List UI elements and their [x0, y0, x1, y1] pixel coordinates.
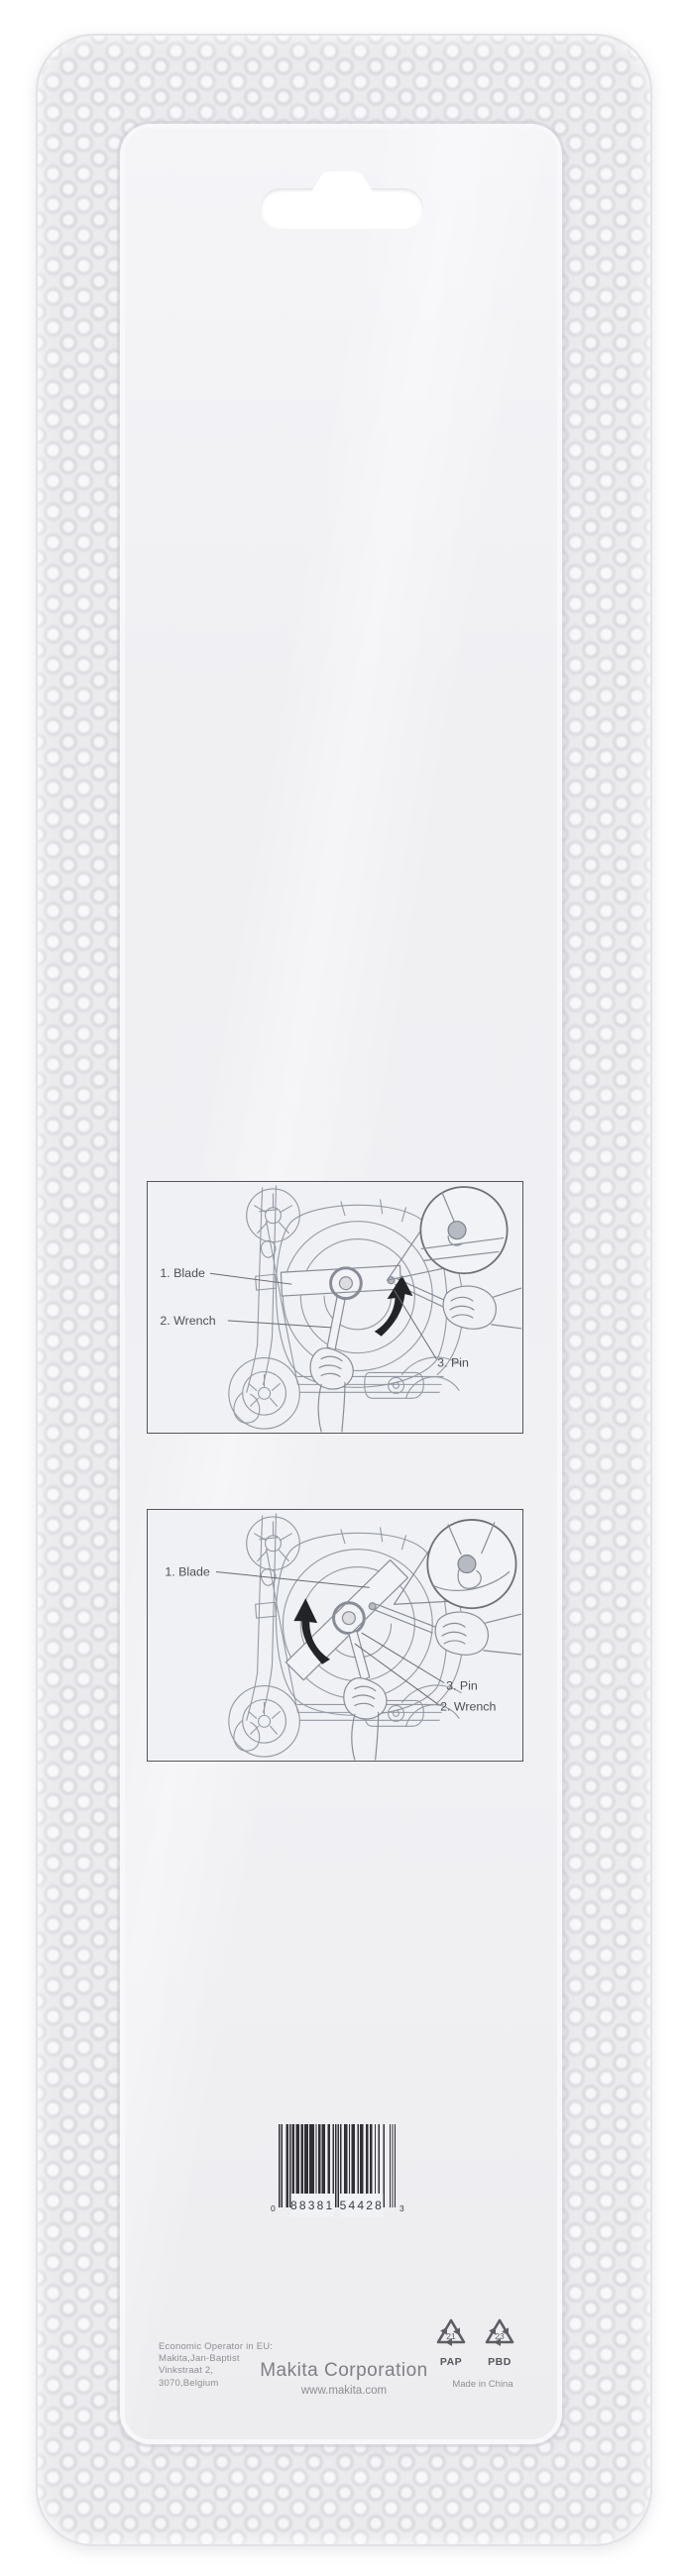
mower-blade-loosen-illustration: 1. Blade 3. Pin 2. Wrench [148, 1510, 522, 1761]
barcode-check-digit: 3 [399, 2203, 404, 2213]
recycling-symbol-pap: 21 PAP [431, 2314, 471, 2368]
recycling-symbols: 21 PAP 23 PBD [431, 2314, 519, 2368]
manufacturer-website: www.makita.com [225, 2385, 463, 2397]
recycling-code: 21 [446, 2331, 456, 2341]
recycling-symbol-pbd: 23 PBD [480, 2314, 519, 2368]
wrench-label: 2. Wrench [160, 1314, 215, 1328]
wrench-label: 2. Wrench [440, 1699, 496, 1713]
euro-hang-hole [261, 188, 423, 228]
recycle-triangle-icon: 23 [480, 2314, 519, 2350]
recycling-label: PBD [480, 2356, 519, 2368]
pin-label: 3. Pin [446, 1679, 478, 1693]
barcode-right-digits: 54428 [340, 2199, 384, 2212]
recycle-triangle-icon: 21 [431, 2314, 471, 2350]
eu-operator-line: Economic Operator in EU: [159, 2341, 317, 2353]
made-in-label: Made in China [433, 2379, 532, 2390]
barcode-left-digits: 88381 [290, 2199, 334, 2212]
pin-label: 3. Pin [437, 1356, 469, 1370]
recycling-code: 23 [495, 2331, 505, 2341]
instruction-diagram-2: 1. Blade 3. Pin 2. Wrench [147, 1509, 523, 1762]
blade-label: 1. Blade [160, 1266, 205, 1280]
recycling-label: PAP [431, 2356, 471, 2368]
magnifier-detail [388, 1187, 508, 1280]
mower-blade-tighten-illustration: 1. Blade 2. Wrench 3. Pin [148, 1182, 522, 1433]
package-photo: 1. Blade 2. Wrench 3. Pin [0, 0, 684, 2576]
manufacturer-name: Makita Corporation [225, 2360, 463, 2382]
instruction-diagram-1: 1. Blade 2. Wrench 3. Pin [147, 1181, 523, 1434]
barcode-system-digit: 0 [271, 2203, 276, 2213]
upc-barcode: 88381 54428 0 3 [267, 2124, 407, 2217]
manufacturer-block: Makita Corporation www.makita.com [225, 2360, 463, 2397]
blade-label: 1. Blade [165, 1564, 210, 1578]
magnifier-detail [395, 1520, 516, 1608]
